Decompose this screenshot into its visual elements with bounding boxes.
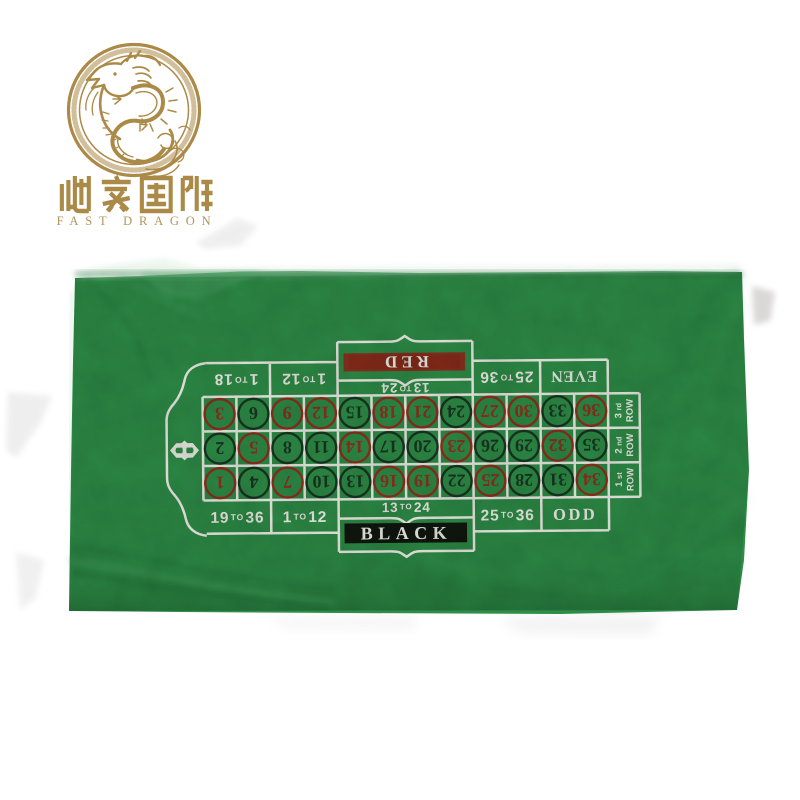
svg-text:FAST DRAGON: FAST DRAGON	[57, 214, 218, 228]
